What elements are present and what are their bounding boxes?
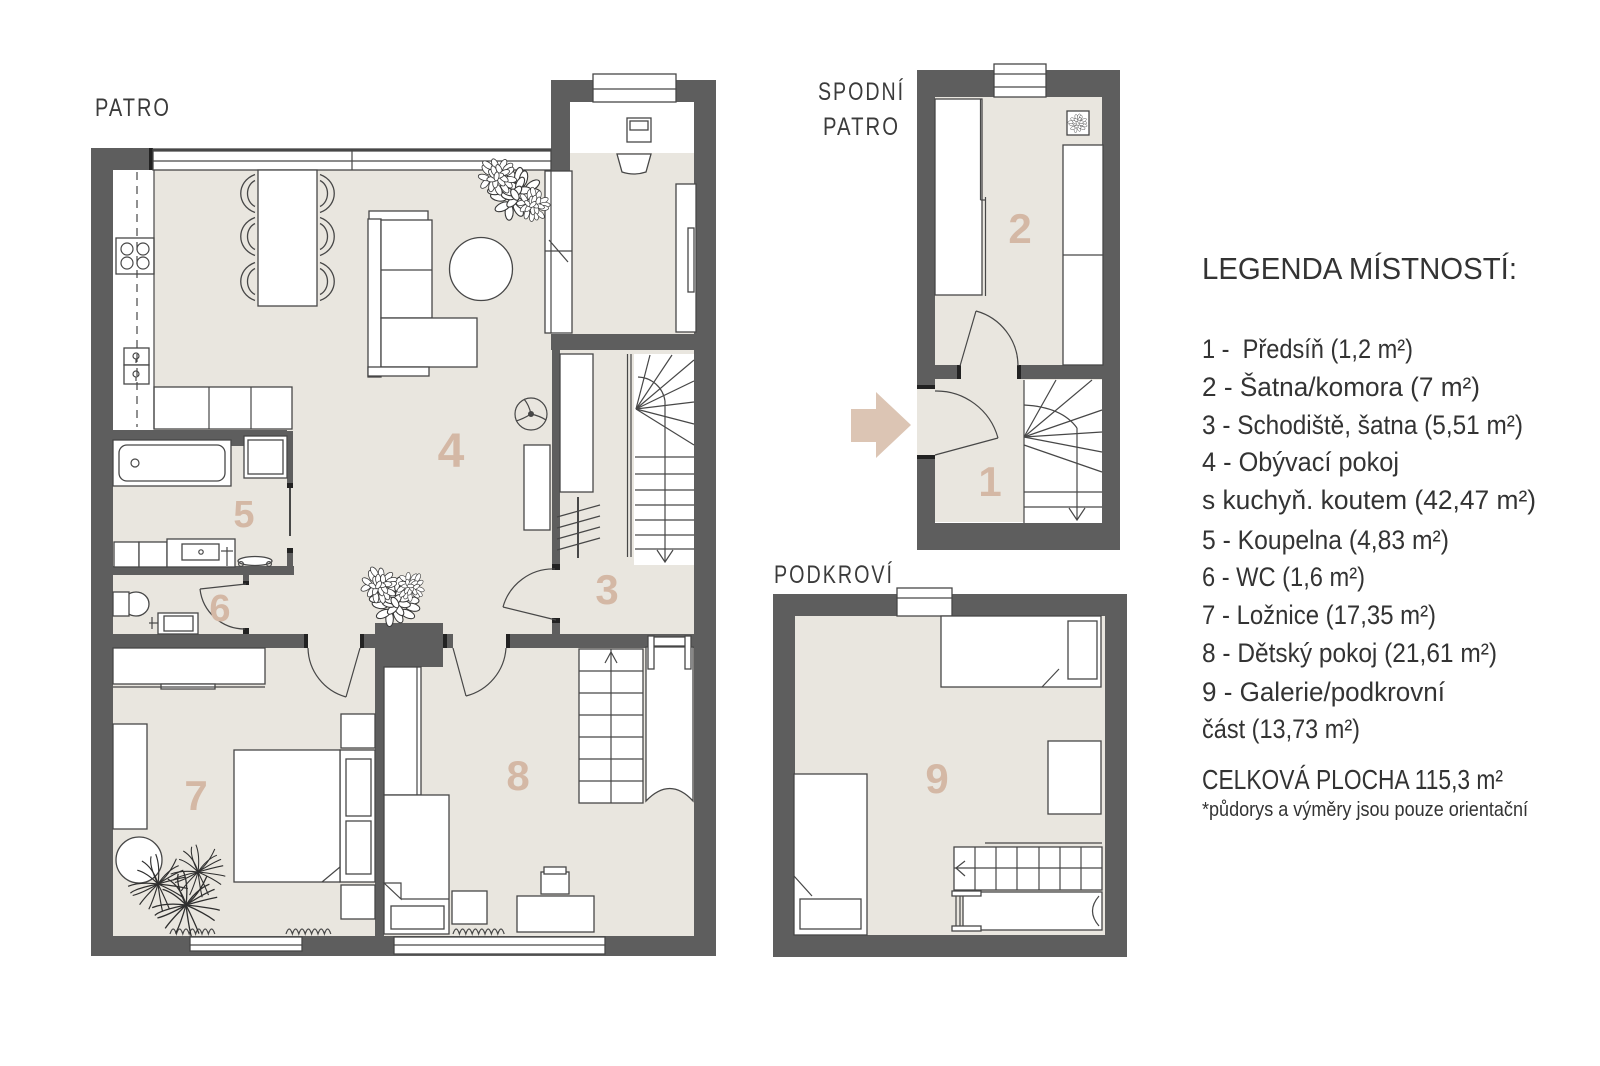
svg-text:s kuchyň. koutem (42,47 m²): s kuchyň. koutem (42,47 m²) bbox=[1202, 485, 1536, 515]
svg-text:2: 2 bbox=[1008, 205, 1031, 252]
svg-text:2 - Šatna/komora (7 m²): 2 - Šatna/komora (7 m²) bbox=[1202, 372, 1480, 402]
svg-text:6 - WC (1,6 m²): 6 - WC (1,6 m²) bbox=[1202, 562, 1365, 592]
svg-text:1 - Předsíň (1,2 m²): 1 - Předsíň (1,2 m²) bbox=[1202, 334, 1413, 364]
svg-text:5 - Koupelna (4,83 m²): 5 - Koupelna (4,83 m²) bbox=[1202, 525, 1449, 555]
svg-text:8 - Dětský pokoj (21,61 m²): 8 - Dětský pokoj (21,61 m²) bbox=[1202, 638, 1497, 668]
svg-text:PATRO: PATRO bbox=[823, 113, 900, 141]
svg-text:8: 8 bbox=[506, 752, 529, 799]
svg-text:1: 1 bbox=[978, 458, 1001, 505]
svg-text:PODKROVÍ: PODKROVÍ bbox=[774, 560, 894, 589]
svg-text:PATRO: PATRO bbox=[95, 94, 171, 122]
svg-text:3: 3 bbox=[595, 566, 618, 613]
svg-text:5: 5 bbox=[233, 494, 254, 536]
svg-text:6: 6 bbox=[209, 588, 230, 630]
svg-text:4: 4 bbox=[438, 425, 465, 478]
svg-text:LEGENDA MÍSTNOSTÍ:: LEGENDA MÍSTNOSTÍ: bbox=[1202, 251, 1517, 286]
svg-text:7: 7 bbox=[184, 772, 207, 819]
svg-text:*půdorys a výměry jsou pouze o: *půdorys a výměry jsou pouze orientační bbox=[1202, 798, 1528, 821]
svg-text:část (13,73 m²): část (13,73 m²) bbox=[1202, 714, 1360, 744]
svg-text:4 - Obývací pokoj: 4 - Obývací pokoj bbox=[1202, 447, 1399, 477]
svg-text:3 - Schodiště, šatna (5,51 m²): 3 - Schodiště, šatna (5,51 m²) bbox=[1202, 410, 1523, 440]
svg-text:9: 9 bbox=[925, 755, 948, 802]
svg-text:CELKOVÁ PLOCHA 115,3 m²: CELKOVÁ PLOCHA 115,3 m² bbox=[1202, 764, 1503, 795]
svg-text:9 - Galerie/podkrovní: 9 - Galerie/podkrovní bbox=[1202, 677, 1446, 707]
svg-text:SPODNÍ: SPODNÍ bbox=[818, 77, 905, 106]
svg-text:7 - Ložnice (17,35 m²): 7 - Ložnice (17,35 m²) bbox=[1202, 600, 1436, 630]
